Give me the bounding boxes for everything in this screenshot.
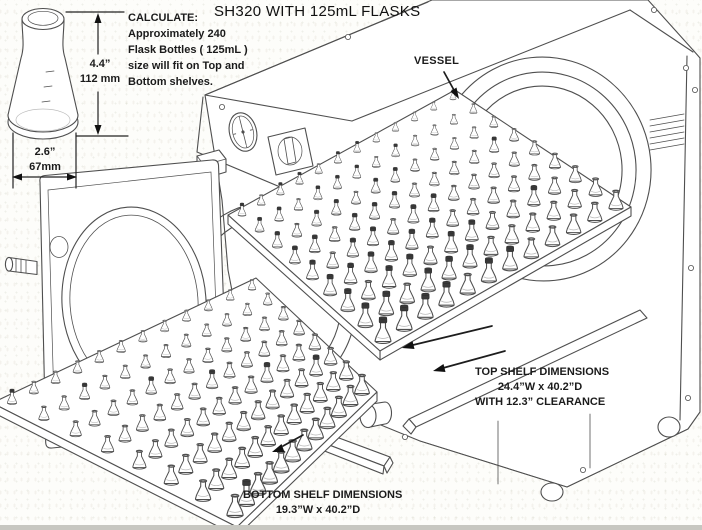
page-title: SH320 WITH 125mL FLASKS xyxy=(214,4,404,19)
flask-height-mm: 112 mm xyxy=(76,72,124,87)
flask-width-inches: 2.6” xyxy=(26,145,64,160)
flask-height-inches: 4.4” xyxy=(84,57,116,72)
bottom-shelf-line: BOTTOM SHELF DIMENSIONS xyxy=(243,488,393,503)
top-shelf-line: TOP SHELF DIMENSIONS xyxy=(475,365,605,380)
flask-width-mm: 67mm xyxy=(24,160,66,175)
sample-flask-drawing xyxy=(8,9,78,140)
bottom-shelf-line: 19.3”W x 40.2”D xyxy=(243,503,393,518)
calculate-line: Bottom shelves. xyxy=(128,75,213,90)
calculate-line: size will fit on Top and xyxy=(128,59,245,74)
diagram-page: SH320 WITH 125mL FLASKS CALCULATE: Appro… xyxy=(0,0,702,530)
calculate-heading: CALCULATE: xyxy=(128,11,198,26)
calculate-line: Approximately 240 xyxy=(128,27,226,42)
calculate-line: Flask Bottles ( 125mL ) xyxy=(128,43,248,58)
scan-edge-strip xyxy=(0,525,702,530)
door-handle xyxy=(5,257,37,274)
vessel-label: VESSEL xyxy=(414,54,459,69)
top-shelf-line: WITH 12.3” CLEARANCE xyxy=(475,395,605,410)
top-shelf-line: 24.4”W x 40.2”D xyxy=(475,380,605,395)
